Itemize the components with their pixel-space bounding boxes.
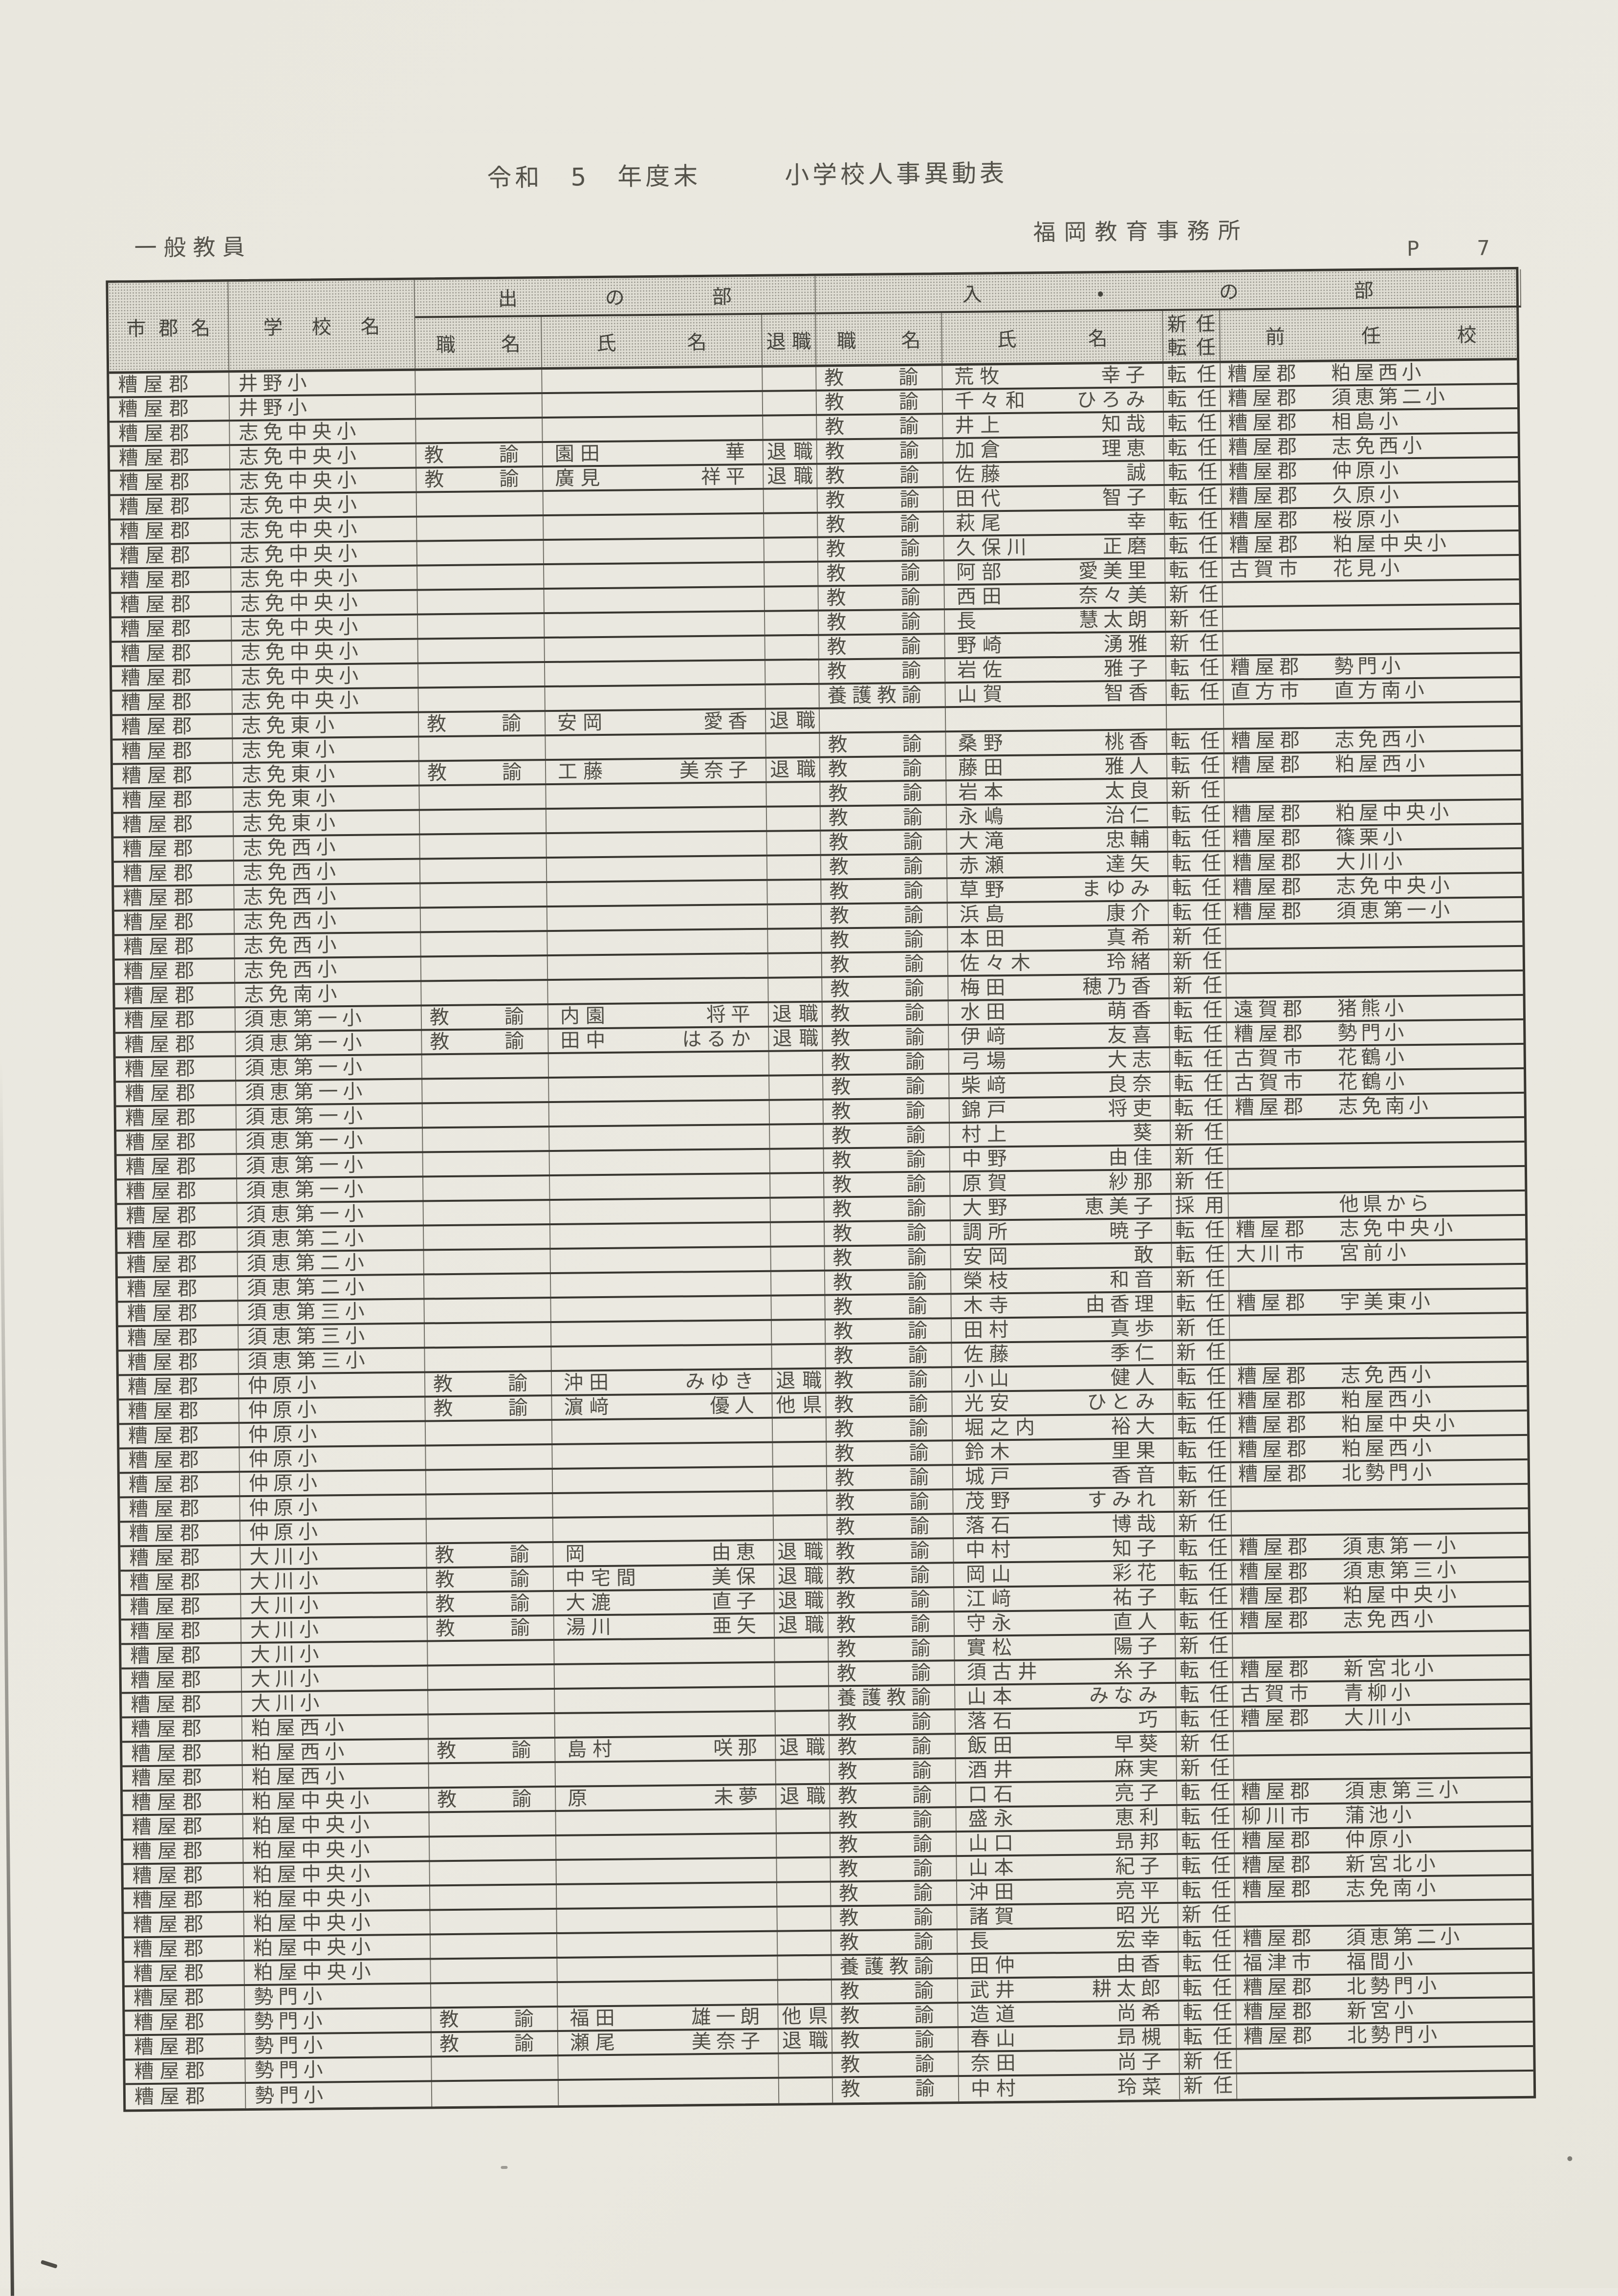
out-role-cell: 教諭 — [422, 1005, 548, 1029]
in-role-cell: 教諭 — [829, 1661, 955, 1685]
in-name-cell: 大滝忠輔 — [947, 828, 1168, 853]
out-role-cell — [423, 1127, 549, 1151]
prev-school: 大川小 — [1344, 1706, 1415, 1729]
in-givenname: 忠輔 — [1105, 828, 1154, 851]
in-name-cell: 長宏幸 — [958, 1928, 1179, 1953]
county-cell: 糟屋郡 — [113, 813, 234, 836]
out-name-cell — [546, 783, 766, 808]
out-status-cell — [767, 832, 821, 855]
out-status-cell — [770, 1198, 824, 1221]
in-role-cell: 教諭 — [830, 1808, 956, 1832]
out-status-cell — [777, 1858, 831, 1881]
county-cell: 糟屋郡 — [110, 470, 230, 494]
county-cell: 糟屋郡 — [124, 1962, 244, 1985]
prev-area: 糟屋郡 — [1228, 387, 1332, 410]
in-role-cell: 養護教諭 — [831, 1955, 958, 1978]
in-surname: 萩尾 — [956, 512, 1006, 535]
out-role-cell — [432, 2056, 558, 2080]
out-name-cell: 園田華 — [543, 441, 764, 465]
in-role-cell: 教諭 — [828, 1515, 954, 1538]
prev-school-cell — [1226, 947, 1528, 972]
in-givenname: 愛美里 — [1078, 559, 1152, 582]
prev-area: 柳川市 — [1241, 1804, 1345, 1828]
prev-school: 北勢門小 — [1347, 2024, 1441, 2047]
school-cell: 志免中央小 — [232, 616, 418, 640]
county-cell: 糟屋郡 — [109, 373, 229, 396]
header-in-name: 氏名 — [942, 311, 1163, 363]
in-givenname: すみれ — [1087, 1488, 1160, 1511]
in-status-cell: 転任 — [1172, 1243, 1229, 1266]
prev-school-cell: 糟屋郡仲原小 — [1235, 1827, 1536, 1853]
in-role-cell: 教諭 — [828, 1564, 954, 1587]
in-surname: 田仲 — [969, 1954, 1020, 1977]
in-name-cell: 弓場大志 — [949, 1048, 1170, 1073]
in-givenname: 太良 — [1105, 779, 1154, 802]
out-role-cell — [430, 1885, 557, 1909]
out-surname: 廣見 — [555, 467, 606, 490]
prev-school-cell: 糟屋郡須恵第一小 — [1226, 898, 1527, 924]
out-name-cell — [546, 734, 766, 759]
out-name-cell: 島村咲那 — [555, 1737, 776, 1761]
out-role-cell — [432, 2081, 559, 2106]
in-surname: 諸賀 — [969, 1905, 1020, 1928]
out-name-cell — [558, 2054, 779, 2079]
out-status-cell — [771, 1247, 825, 1270]
out-role-cell: 教諭 — [431, 2008, 558, 2031]
prev-area — [1238, 1498, 1342, 1499]
in-surname: 井上 — [955, 414, 1006, 437]
out-role-cell — [421, 907, 547, 931]
prev-area: 糟屋郡 — [1232, 802, 1335, 826]
prev-area — [1244, 2085, 1348, 2086]
county-cell: 糟屋郡 — [125, 2059, 245, 2083]
out-givenname: 愛香 — [703, 710, 752, 733]
in-givenname: 由香理 — [1085, 1293, 1159, 1316]
county-cell: 糟屋郡 — [117, 1179, 237, 1203]
in-name-cell: 岩本太良 — [946, 779, 1167, 804]
in-surname: 中村 — [965, 1539, 1016, 1562]
county-cell: 糟屋郡 — [112, 641, 232, 665]
school-cell: 勢門小 — [245, 2057, 432, 2082]
in-name-cell: 岩佐雅子 — [945, 657, 1166, 682]
prev-school-cell: 直方市直方南小 — [1224, 678, 1525, 704]
school-cell: 仲原小 — [239, 1373, 425, 1398]
out-role-cell: 教諭 — [419, 761, 546, 784]
out-status-cell: 退職 — [779, 2030, 832, 2053]
in-givenname: まゆみ — [1081, 877, 1155, 900]
in-name-cell: 山本みなみ — [955, 1684, 1176, 1708]
in-surname: 錦戸 — [962, 1099, 1012, 1122]
school-cell: 志免東小 — [233, 738, 419, 762]
school-cell: 大川小 — [241, 1568, 427, 1593]
in-name-cell: 落石巧 — [956, 1708, 1177, 1733]
in-status-cell: 転任 — [1176, 1683, 1233, 1706]
page-number-value: 7 — [1477, 236, 1490, 260]
in-name-cell: 落石博哉 — [954, 1513, 1175, 1537]
out-name-cell — [550, 1199, 771, 1223]
in-name-cell: 野崎湧雅 — [945, 633, 1166, 657]
school-cell: 志免中央小 — [230, 444, 416, 469]
out-role-cell — [418, 663, 545, 686]
in-surname: 江﨑 — [966, 1588, 1017, 1611]
in-name-cell: 荒牧幸子 — [942, 364, 1163, 388]
prev-school-cell — [1232, 1509, 1533, 1535]
in-status-cell: 転任 — [1170, 1072, 1227, 1095]
prev-school: 志免西小 — [1332, 435, 1426, 458]
out-name-cell: 沖田みゆき — [552, 1370, 772, 1394]
prev-school: 久原小 — [1333, 484, 1403, 507]
in-status-cell: 転任 — [1173, 1366, 1230, 1389]
out-name-cell — [548, 979, 768, 1003]
out-role-cell: 教諭 — [425, 1372, 552, 1395]
prev-school: 花見小 — [1333, 557, 1403, 580]
out-name-cell: 原未夢 — [556, 1786, 776, 1810]
in-surname: 山本 — [967, 1685, 1018, 1708]
prev-area: 糟屋郡 — [1231, 753, 1335, 777]
header-out-status: 退職 — [762, 314, 816, 365]
in-givenname: 恵美子 — [1084, 1195, 1158, 1218]
in-name-cell: 酒井麻実 — [956, 1757, 1177, 1782]
prev-school: 篠栗小 — [1335, 826, 1406, 849]
county-cell: 糟屋郡 — [117, 1155, 237, 1178]
in-surname: 岡山 — [966, 1563, 1017, 1586]
prev-school: 粕屋中央小 — [1343, 1583, 1460, 1607]
prev-area: 糟屋郡 — [1227, 362, 1331, 386]
in-status-cell: 転任 — [1179, 1928, 1236, 1951]
out-role-cell — [431, 1934, 557, 1958]
county-cell: 糟屋郡 — [110, 446, 230, 469]
out-name-cell — [552, 1443, 773, 1468]
out-givenname: 美奈子 — [679, 759, 753, 782]
in-role-cell: 教諭 — [830, 1784, 956, 1807]
in-givenname: 穂乃香 — [1082, 975, 1156, 998]
out-name-cell — [551, 1297, 771, 1321]
school-cell: 須恵第一小 — [237, 1104, 423, 1129]
prev-school: 相島小 — [1332, 410, 1402, 433]
in-role-cell: 教諭 — [818, 586, 944, 609]
out-status-cell — [765, 587, 818, 610]
county-cell: 糟屋郡 — [116, 1130, 237, 1154]
school-cell: 仲原小 — [240, 1495, 426, 1520]
county-cell: 糟屋郡 — [111, 544, 231, 567]
in-role-cell: 教諭 — [820, 757, 946, 780]
prev-school: 志免西小 — [1343, 1608, 1437, 1632]
county-cell: 糟屋郡 — [119, 1375, 239, 1398]
in-role-cell: 教諭 — [823, 1026, 949, 1049]
scan-artifact — [1567, 2156, 1572, 2161]
in-surname: 城戸 — [965, 1465, 1016, 1488]
in-surname: 大滝 — [959, 830, 1009, 853]
in-givenname: 尚子 — [1117, 2051, 1166, 2074]
in-role-cell: 教諭 — [822, 904, 948, 927]
in-givenname: 達矢 — [1106, 853, 1155, 876]
prev-area — [1230, 618, 1334, 619]
out-name-cell — [545, 588, 765, 612]
county-cell: 糟屋郡 — [112, 739, 233, 763]
out-name-cell — [556, 1810, 777, 1834]
prev-school-cell — [1237, 2072, 1538, 2099]
out-surname: 安岡 — [557, 711, 608, 734]
in-givenname: 知子 — [1112, 1537, 1161, 1560]
in-status-cell: 転任 — [1178, 1879, 1235, 1902]
table-header: 市郡名 学校名 出の部 入・の部 職名 氏名 退職 職名 — [108, 269, 1517, 374]
out-name-cell — [547, 930, 768, 954]
scan-artifact — [41, 2260, 58, 2269]
in-surname: 榮枝 — [963, 1270, 1014, 1293]
county-cell: 糟屋郡 — [124, 1888, 244, 1912]
in-role-cell: 教諭 — [821, 855, 947, 878]
in-givenname: 友喜 — [1107, 1024, 1156, 1047]
prev-area: 大川市 — [1236, 1242, 1339, 1266]
in-givenname: 玲菜 — [1117, 2076, 1166, 2099]
prev-area: 糟屋郡 — [1231, 729, 1334, 752]
out-name-cell — [547, 832, 767, 857]
county-cell: 糟屋郡 — [120, 1522, 241, 1545]
out-name-cell — [553, 1517, 774, 1541]
prev-area: 糟屋郡 — [1232, 876, 1336, 899]
in-status-cell: 新任 — [1171, 1146, 1228, 1169]
prev-area: 糟屋郡 — [1239, 1560, 1343, 1584]
in-givenname: 亮子 — [1115, 1782, 1163, 1805]
in-surname: 茂野 — [965, 1490, 1016, 1513]
prev-area: 糟屋郡 — [1237, 1389, 1341, 1413]
out-surname: 瀬尾 — [570, 2031, 621, 2054]
out-role-cell — [418, 590, 545, 613]
header-prev-school: 前任校 — [1220, 308, 1522, 361]
in-role-cell: 教諭 — [824, 1099, 950, 1123]
out-status-cell — [765, 685, 819, 708]
in-surname: 伊﨑 — [961, 1025, 1011, 1048]
out-name-cell — [550, 1150, 770, 1174]
out-name-cell: 廣見祥平 — [543, 465, 764, 490]
in-surname: 柴﨑 — [961, 1074, 1012, 1097]
out-status-cell — [765, 563, 818, 586]
out-status-cell — [770, 1125, 824, 1148]
out-role-cell: 教諭 — [422, 1030, 548, 1053]
out-role-cell — [431, 1959, 557, 1982]
out-status-cell — [771, 1272, 825, 1295]
out-status-cell — [779, 2078, 833, 2103]
prev-school-cell: 糟屋郡志免西小 — [1222, 434, 1523, 459]
out-role-cell — [429, 1714, 555, 1738]
out-givenname: 美奈子 — [692, 2030, 765, 2053]
school-cell: 粕屋西小 — [243, 1764, 429, 1788]
prev-area — [1232, 789, 1335, 790]
in-name-cell: 山口昻邦 — [957, 1831, 1178, 1855]
in-role-cell: 教諭 — [817, 390, 943, 414]
school-cell: 大川小 — [241, 1544, 427, 1568]
out-surname: 湯川 — [566, 1616, 617, 1639]
out-name-cell — [556, 1859, 777, 1883]
out-role-cell — [421, 981, 548, 1004]
county-cell: 糟屋郡 — [112, 666, 232, 689]
in-status-cell: 転任 — [1175, 1537, 1232, 1560]
prev-area — [1230, 594, 1334, 595]
in-name-cell: 奈田尚子 — [959, 2051, 1180, 2075]
out-role-cell — [423, 1103, 549, 1126]
out-name-cell — [553, 1468, 773, 1492]
out-status-cell: 退職 — [769, 1027, 823, 1050]
in-status-cell: 転任 — [1170, 1023, 1227, 1046]
county-cell: 糟屋郡 — [120, 1497, 240, 1521]
county-cell: 糟屋郡 — [115, 984, 235, 1007]
in-role-cell: 教諭 — [826, 1368, 952, 1391]
in-name-cell: 田仲由香 — [958, 1953, 1179, 1977]
out-status-cell — [776, 1761, 830, 1784]
in-status-cell: 新任 — [1167, 779, 1224, 802]
county-cell: 糟屋郡 — [116, 1082, 236, 1105]
prev-school: 志免西小 — [1341, 1364, 1435, 1387]
school-cell: 大川小 — [241, 1593, 427, 1617]
in-status-cell: 転任 — [1168, 852, 1225, 875]
out-givenname: 祥平 — [701, 465, 750, 488]
county-cell: 糟屋郡 — [110, 519, 231, 543]
school-cell: 須恵第三小 — [239, 1325, 425, 1349]
in-name-cell: 千々和ひろみ — [943, 388, 1164, 413]
out-status-cell — [763, 416, 817, 439]
prev-area: 糟屋郡 — [1229, 533, 1333, 557]
in-role-cell: 教諭 — [816, 366, 942, 389]
in-givenname: 恵利 — [1115, 1806, 1163, 1829]
in-surname: 春山 — [970, 2028, 1021, 2051]
in-givenname: 季仁 — [1110, 1342, 1159, 1365]
prev-school-cell: 糟屋郡粕屋西小 — [1230, 1387, 1531, 1413]
in-role-cell: 教諭 — [825, 1221, 951, 1245]
in-status-cell: 転任 — [1164, 437, 1222, 460]
prev-school: 須恵第一小 — [1336, 899, 1454, 922]
prev-school: 新宮北小 — [1344, 1657, 1438, 1680]
out-name-cell — [547, 905, 768, 930]
prev-school: 粕屋中央小 — [1335, 801, 1453, 824]
prev-school: 猪熊小 — [1337, 997, 1408, 1020]
in-surname: 口石 — [968, 1783, 1019, 1806]
county-cell: 糟屋郡 — [125, 2035, 245, 2058]
school-cell: 粕屋中央小 — [244, 1886, 430, 1911]
header-incoming-group: 入・の部 — [815, 269, 1521, 314]
out-name-cell: 岡由恵 — [553, 1541, 774, 1566]
in-status-cell: 転任 — [1165, 510, 1222, 533]
in-givenname: 智子 — [1102, 486, 1151, 509]
in-name-cell: 中野由佳 — [950, 1146, 1171, 1170]
in-role-cell: 教諭 — [821, 830, 947, 854]
out-givenname: 直子 — [712, 1590, 761, 1613]
in-surname: 造道 — [970, 2003, 1021, 2026]
out-role-cell — [423, 1152, 550, 1175]
prev-school: 須恵第三小 — [1345, 1779, 1462, 1802]
in-status-cell: 転任 — [1175, 1561, 1232, 1584]
out-name-cell — [549, 1101, 770, 1126]
school-cell: 須恵第三小 — [238, 1300, 424, 1325]
prev-area: 糟屋郡 — [1239, 1536, 1342, 1559]
prev-school-cell: 糟屋郡相島小 — [1221, 409, 1522, 435]
prev-school-cell — [1224, 703, 1525, 728]
out-status-cell — [763, 367, 816, 390]
in-givenname: 康介 — [1106, 902, 1155, 925]
in-surname: 山本 — [968, 1856, 1019, 1879]
in-status-cell: 転任 — [1165, 534, 1222, 557]
in-surname: 水田 — [961, 1001, 1011, 1024]
out-name-cell — [545, 637, 765, 661]
out-givenname: 咲那 — [713, 1737, 762, 1760]
prev-area: 糟屋郡 — [1242, 1877, 1346, 1901]
in-name-cell: 堀之内裕大 — [953, 1415, 1174, 1439]
in-status-cell: 新任 — [1165, 583, 1223, 606]
out-name-cell: 田中はるか — [548, 1028, 769, 1052]
county-cell: 糟屋郡 — [110, 495, 231, 518]
out-status-cell: 退職 — [764, 465, 817, 488]
prev-school-cell: 大川市宮前小 — [1229, 1240, 1530, 1266]
in-givenname: 暁子 — [1109, 1219, 1158, 1242]
in-givenname: 裕大 — [1111, 1415, 1160, 1438]
in-role-cell: 教諭 — [820, 781, 946, 805]
prev-school: 粕屋西小 — [1331, 361, 1425, 385]
in-status-cell: 転任 — [1174, 1463, 1231, 1486]
table-body: 糟屋郡井野小教諭荒牧幸子転任糟屋郡粕屋西小糟屋郡井野小教諭千々和ひろみ転任糟屋郡… — [109, 360, 1533, 2109]
prev-school: 志免南小 — [1338, 1095, 1432, 1118]
out-role-cell — [426, 1494, 553, 1518]
prev-school: 大川小 — [1336, 850, 1406, 873]
in-givenname: 昻邦 — [1115, 1831, 1164, 1854]
prev-area: 糟屋郡 — [1238, 1413, 1341, 1437]
out-role-cell — [424, 1299, 551, 1322]
out-givenname: 将平 — [706, 1003, 755, 1026]
county-cell: 糟屋郡 — [126, 2084, 246, 2109]
in-name-cell: 木寺由香理 — [951, 1293, 1172, 1317]
county-cell: 糟屋郡 — [109, 421, 230, 445]
out-status-cell: 他県 — [772, 1394, 826, 1417]
prev-area — [1243, 1913, 1346, 1914]
in-surname: 中野 — [962, 1148, 1013, 1170]
in-surname: 原賀 — [962, 1172, 1013, 1195]
out-status-cell: 退職 — [775, 1614, 829, 1637]
school-cell: 粕屋中央小 — [243, 1813, 430, 1837]
county-cell: 糟屋郡 — [120, 1473, 240, 1496]
prev-school-cell: 糟屋郡篠栗小 — [1225, 825, 1526, 850]
out-role-cell — [430, 1812, 556, 1835]
out-status-cell — [767, 807, 821, 830]
in-name-cell: 口石亮子 — [956, 1782, 1177, 1806]
county-cell: 糟屋郡 — [113, 788, 233, 812]
out-status-cell — [777, 1834, 831, 1857]
prev-school-cell: 古賀市花鶴小 — [1227, 1069, 1529, 1095]
in-givenname: 湧雅 — [1103, 633, 1152, 656]
prev-school-cell — [1223, 580, 1524, 606]
scan-artifact — [0, 8, 14, 2296]
school-cell: 志免東小 — [233, 713, 419, 738]
county-cell: 糟屋郡 — [123, 1815, 243, 1838]
in-status-cell: 転任 — [1164, 461, 1222, 484]
prev-school-cell: 糟屋郡須恵第一小 — [1232, 1534, 1533, 1559]
out-role-cell — [418, 639, 545, 662]
scan-artifact — [501, 2166, 507, 2169]
prev-area: 糟屋郡 — [1233, 900, 1336, 924]
prev-school-cell — [1233, 1632, 1534, 1657]
out-name-cell: 内園将平 — [548, 1003, 769, 1028]
in-role-cell: 教諭 — [826, 1392, 952, 1416]
prev-school-cell: 糟屋郡粕屋西小 — [1231, 1436, 1532, 1461]
school-cell: 須恵第二小 — [238, 1276, 424, 1300]
in-surname: 堀之内 — [964, 1416, 1041, 1439]
in-surname: 野崎 — [957, 634, 1007, 657]
prev-school-cell: 糟屋郡粕屋中央小 — [1232, 1583, 1533, 1608]
out-status-cell: 退職 — [772, 1369, 826, 1392]
out-role-cell — [428, 1690, 555, 1713]
prev-area: 古賀市 — [1234, 1071, 1338, 1095]
out-status-cell: 退職 — [769, 1003, 823, 1026]
prev-area: 糟屋郡 — [1229, 509, 1333, 532]
out-name-cell — [555, 1663, 775, 1688]
in-role-cell: 教諭 — [821, 879, 947, 903]
